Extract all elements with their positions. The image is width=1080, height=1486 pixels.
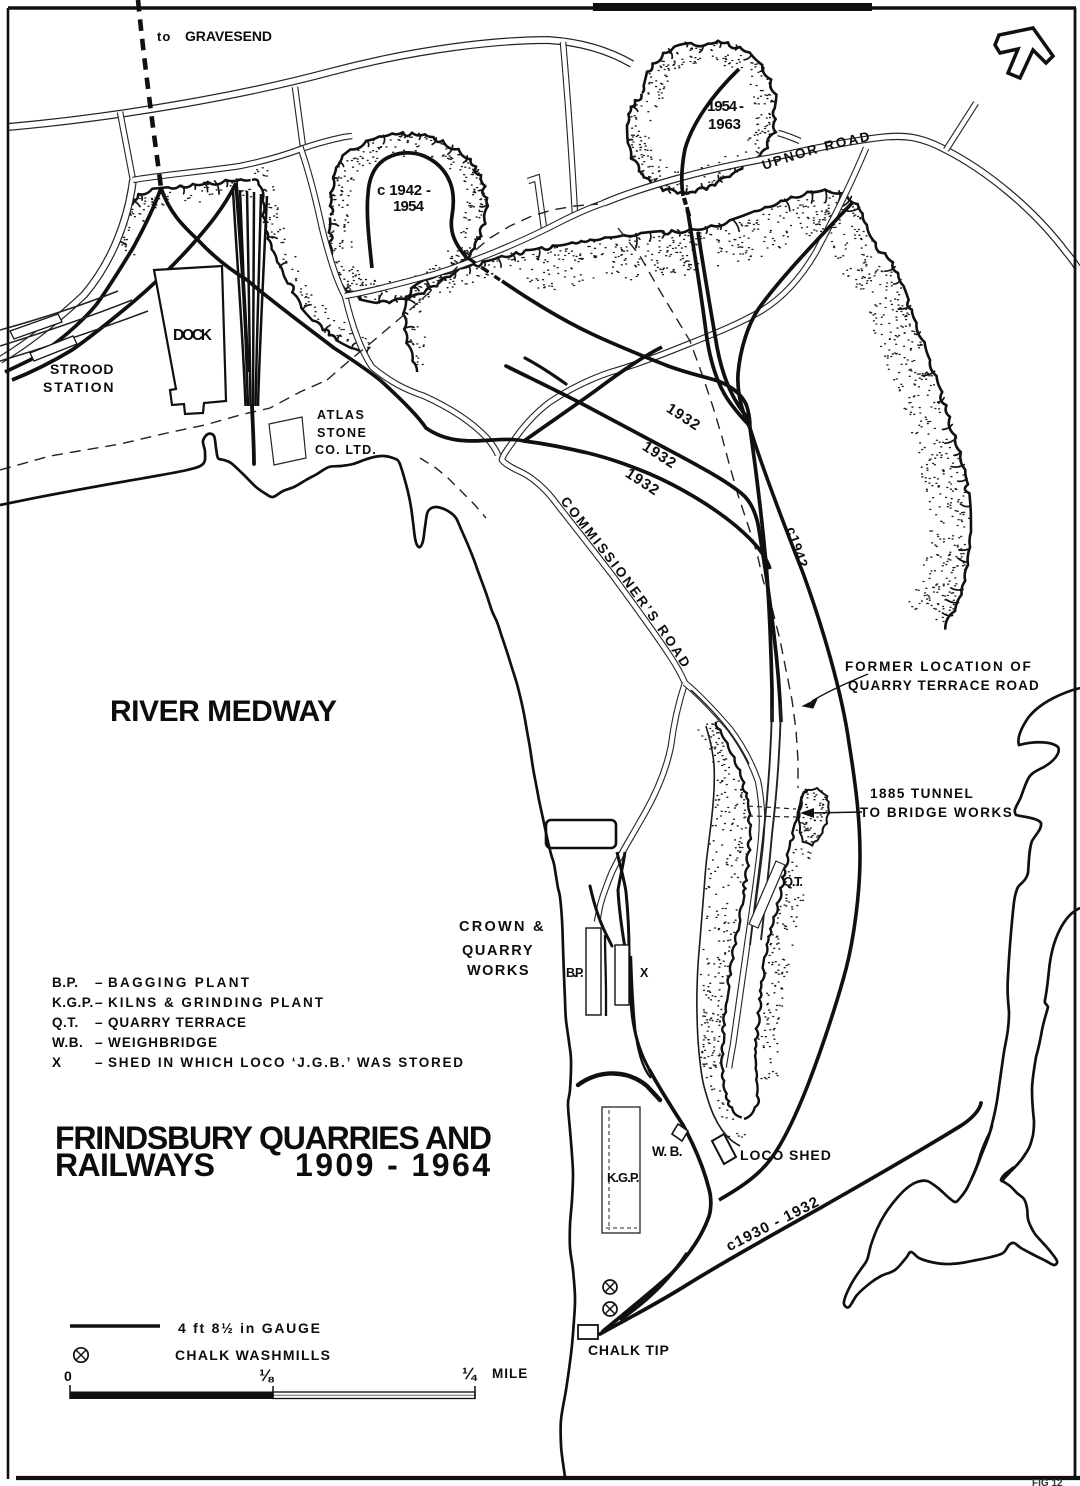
svg-text:GRAVESEND: GRAVESEND xyxy=(185,28,273,44)
svg-text:–: – xyxy=(95,1035,103,1050)
svg-text:FIG 12: FIG 12 xyxy=(1032,1478,1063,1486)
svg-text:KILNS & GRINDING PLANT: KILNS & GRINDING PLANT xyxy=(108,995,324,1010)
svg-text:1954 -: 1954 - xyxy=(707,98,745,115)
svg-text:STONE: STONE xyxy=(317,426,367,440)
svg-text:QUARRY: QUARRY xyxy=(462,943,534,959)
svg-text:K.G.P.: K.G.P. xyxy=(52,995,94,1010)
svg-text:DOCK: DOCK xyxy=(173,327,214,344)
svg-text:–: – xyxy=(95,995,103,1010)
svg-text:FORMER LOCATION OF: FORMER LOCATION OF xyxy=(845,659,1032,674)
svg-text:MILE: MILE xyxy=(492,1366,528,1381)
svg-text:1909 - 1964: 1909 - 1964 xyxy=(295,1147,490,1183)
svg-text:Q.T.: Q.T. xyxy=(783,874,804,889)
svg-text:–: – xyxy=(95,1015,103,1030)
svg-text:X: X xyxy=(52,1055,62,1070)
svg-text:c 1942 -: c 1942 - xyxy=(377,182,432,199)
svg-text:CHALK TIP: CHALK TIP xyxy=(588,1342,670,1358)
svg-text:to: to xyxy=(157,29,171,44)
svg-text:–: – xyxy=(95,975,103,990)
svg-text:W.B.: W.B. xyxy=(52,1035,83,1050)
svg-text:BAGGING PLANT: BAGGING PLANT xyxy=(108,975,250,990)
svg-text:CO. LTD.: CO. LTD. xyxy=(315,443,377,457)
svg-text:LOCO SHED: LOCO SHED xyxy=(740,1147,832,1163)
svg-text:1954: 1954 xyxy=(393,198,425,215)
svg-text:RIVER MEDWAY: RIVER MEDWAY xyxy=(110,695,339,728)
svg-text:0: 0 xyxy=(64,1368,72,1384)
svg-text:TO BRIDGE WORKS: TO BRIDGE WORKS xyxy=(860,805,1013,820)
svg-text:–: – xyxy=(95,1055,103,1070)
svg-text:¼: ¼ xyxy=(462,1364,478,1383)
svg-text:QUARRY TERRACE: QUARRY TERRACE xyxy=(108,1015,246,1030)
svg-text:1963: 1963 xyxy=(708,116,742,133)
svg-text:SHED IN WHICH LOCO ‘J.G.B.’ WA: SHED IN WHICH LOCO ‘J.G.B.’ WAS STORED xyxy=(108,1055,463,1070)
svg-text:K.G.P.: K.G.P. xyxy=(607,1170,640,1185)
svg-text:W. B.: W. B. xyxy=(652,1144,683,1159)
svg-text:WORKS: WORKS xyxy=(467,963,530,979)
svg-text:⅛: ⅛ xyxy=(259,1366,275,1385)
svg-text:B.P.: B.P. xyxy=(52,975,79,990)
svg-text:STATION: STATION xyxy=(43,379,115,395)
svg-text:RAILWAYS: RAILWAYS xyxy=(55,1147,215,1183)
svg-text:CHALK WASHMILLS: CHALK WASHMILLS xyxy=(175,1347,330,1363)
svg-text:STROOD: STROOD xyxy=(50,361,115,377)
svg-text:WEIGHBRIDGE: WEIGHBRIDGE xyxy=(108,1035,217,1050)
svg-text:4 ft 8½ in GAUGE: 4 ft 8½ in GAUGE xyxy=(178,1320,320,1336)
svg-text:X: X xyxy=(640,966,649,980)
svg-text:1885 TUNNEL: 1885 TUNNEL xyxy=(870,786,974,801)
svg-text:Q.T.: Q.T. xyxy=(52,1015,79,1030)
svg-text:CROWN &: CROWN & xyxy=(459,919,545,935)
svg-text:B.P.: B.P. xyxy=(566,966,584,980)
svg-text:ATLAS: ATLAS xyxy=(317,408,365,422)
svg-text:QUARRY TERRACE ROAD: QUARRY TERRACE ROAD xyxy=(848,678,1040,693)
